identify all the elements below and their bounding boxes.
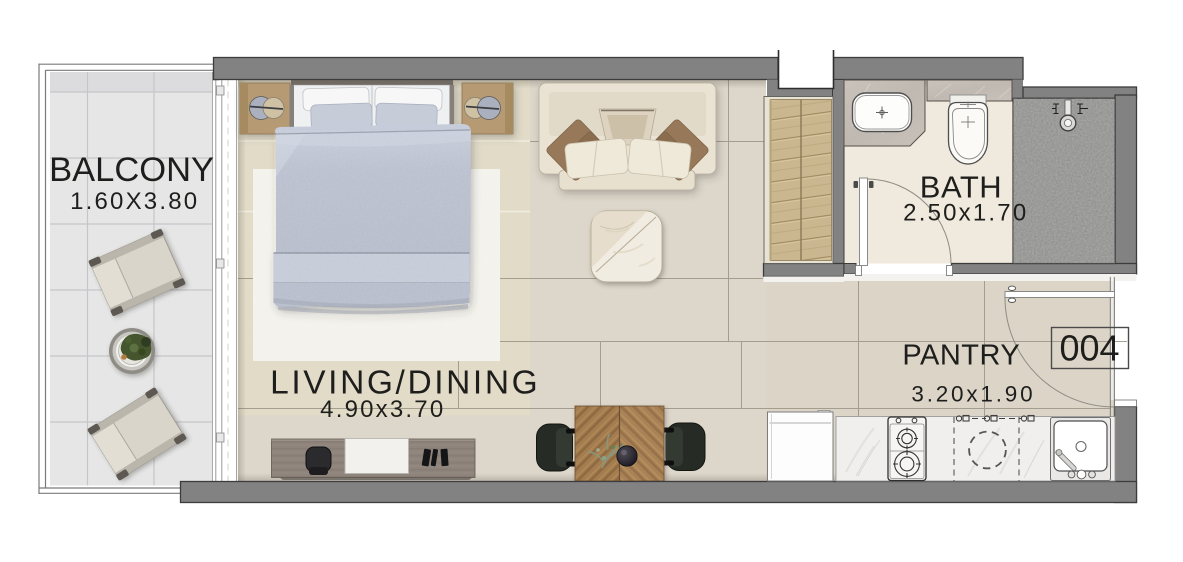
svg-text:1.60X3.80: 1.60X3.80 [70, 188, 199, 215]
svg-text:004: 004 [1059, 328, 1119, 369]
svg-text:3.20x1.90: 3.20x1.90 [911, 382, 1035, 407]
svg-text:PANTRY: PANTRY [902, 340, 1020, 372]
svg-text:2.50x1.70: 2.50x1.70 [903, 200, 1028, 227]
svg-text:4.90x3.70: 4.90x3.70 [320, 396, 445, 423]
svg-text:BALCONY: BALCONY [49, 151, 214, 189]
